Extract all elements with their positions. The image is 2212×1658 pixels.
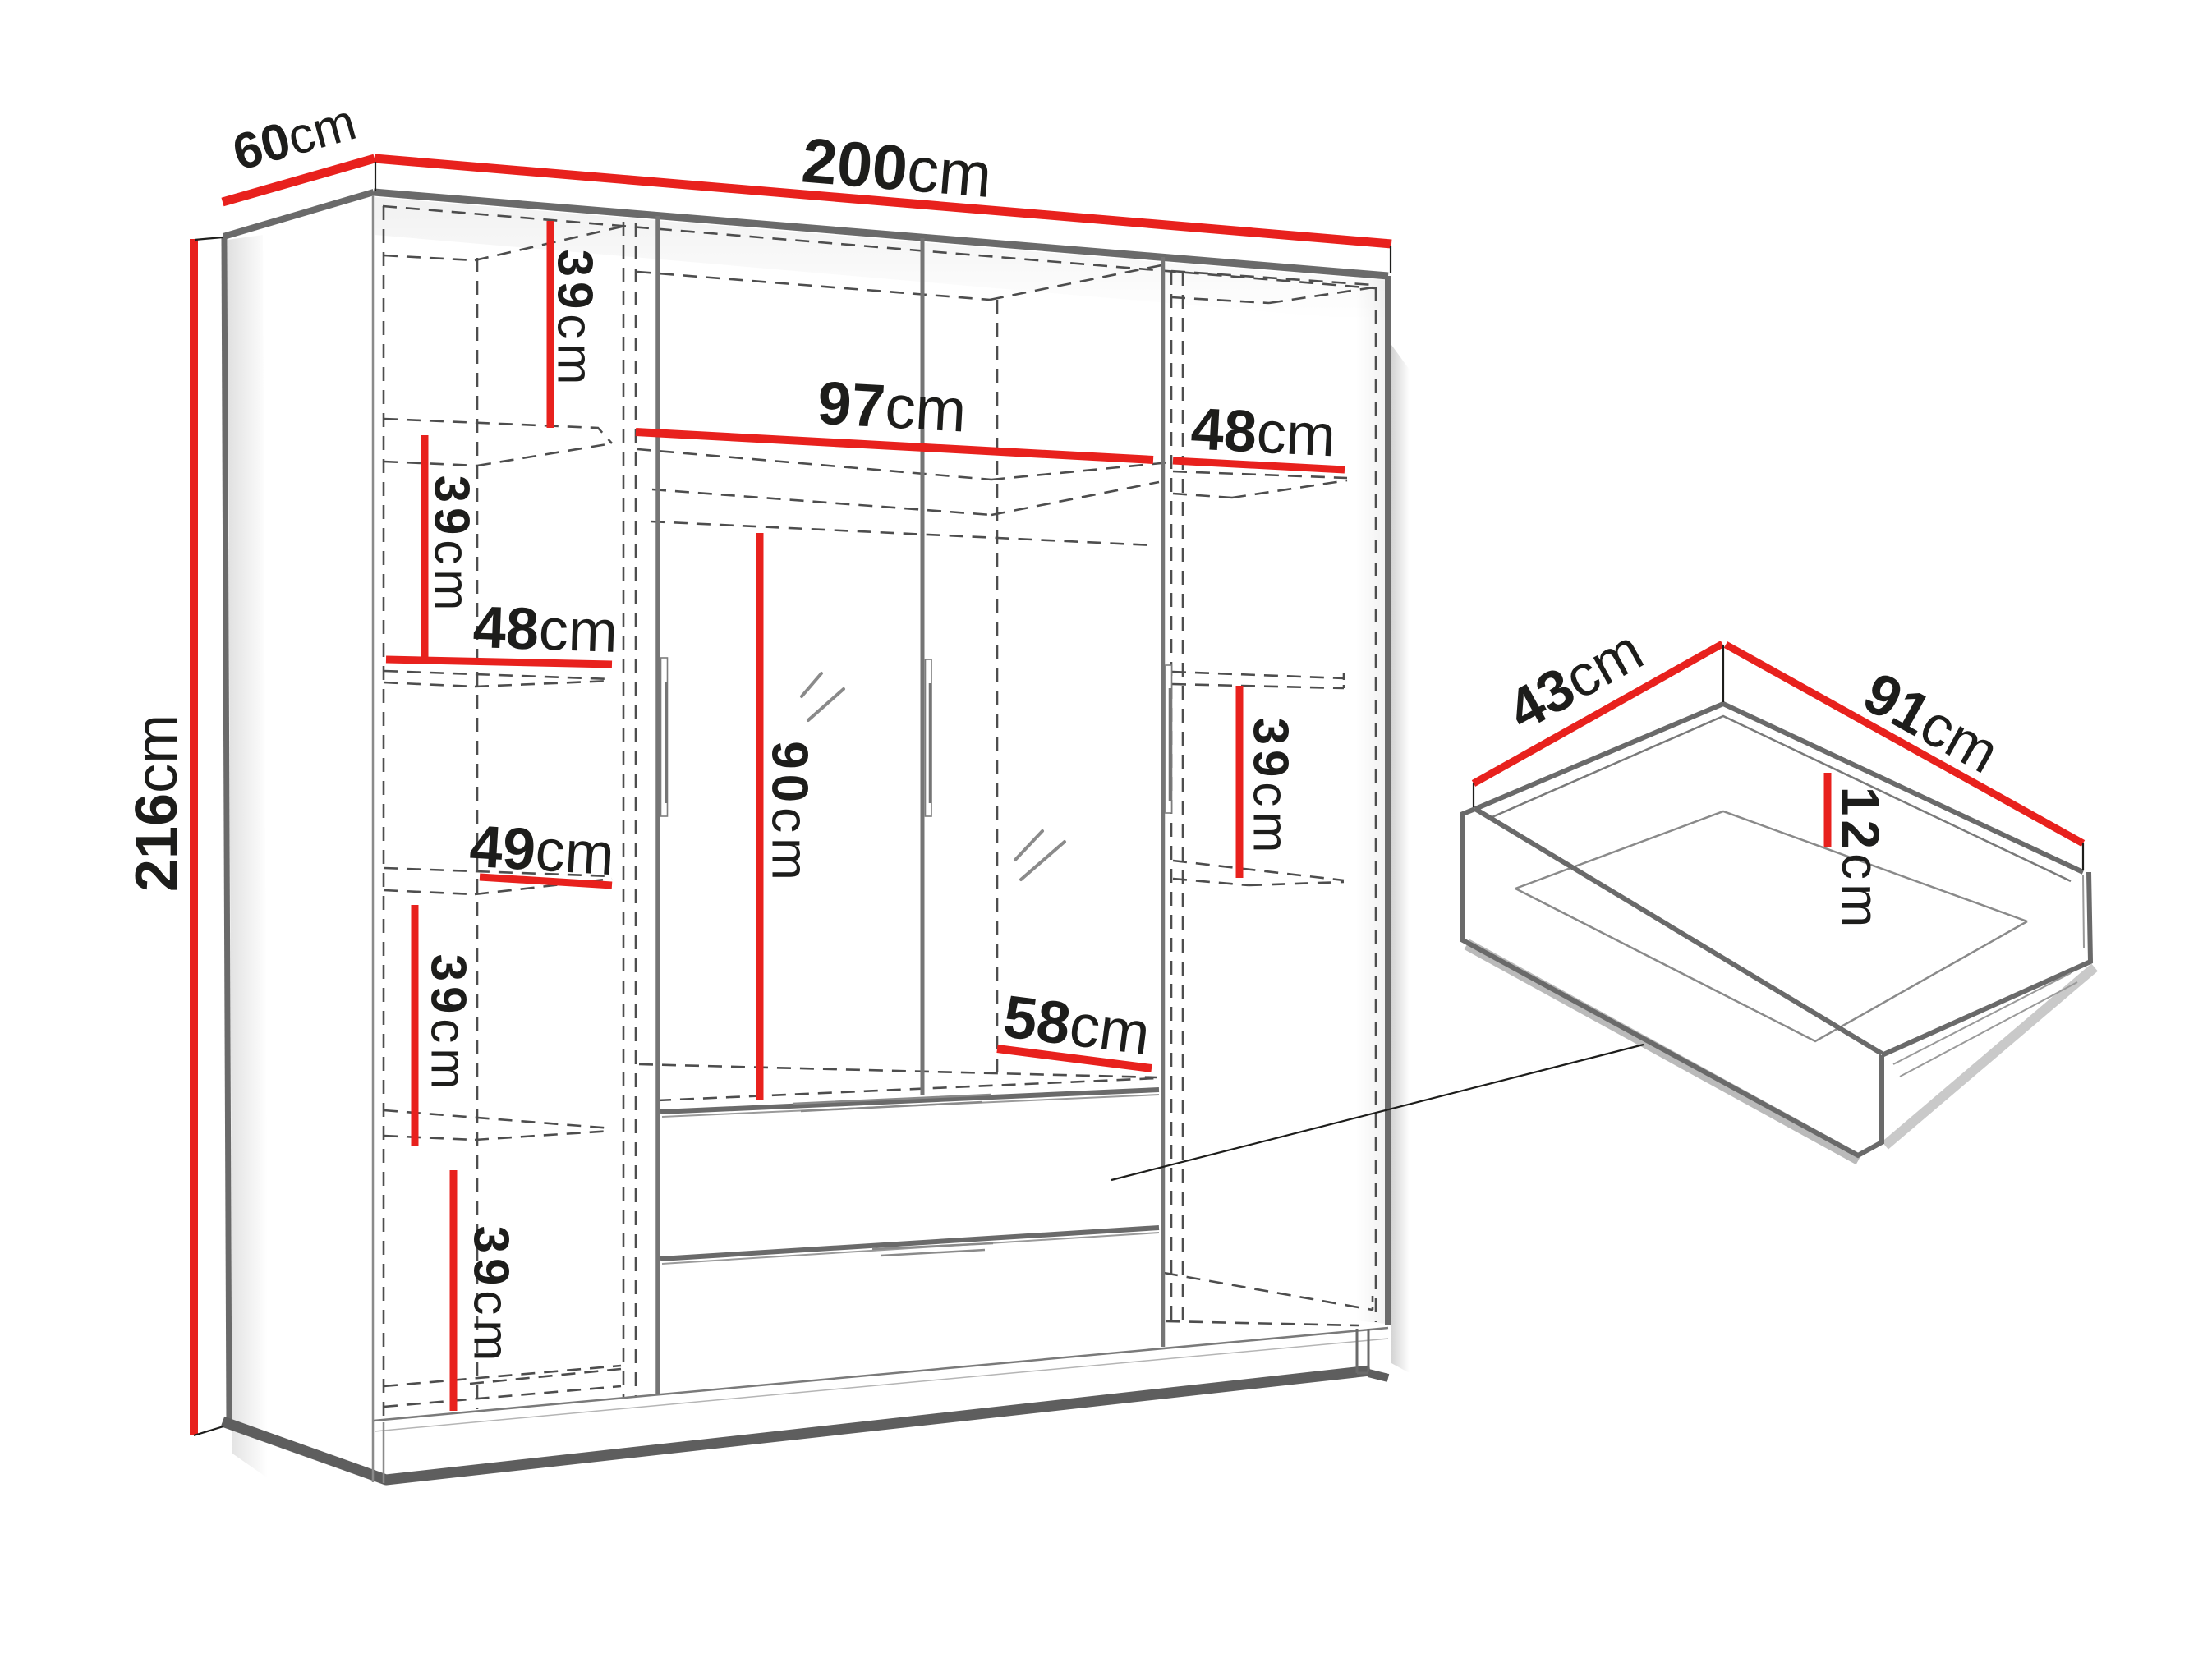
svg-text:39cm: 39cm <box>424 475 479 616</box>
svg-text:97cm: 97cm <box>816 369 968 445</box>
svg-text:48cm: 48cm <box>1189 396 1337 469</box>
svg-text:49cm: 49cm <box>468 814 617 889</box>
svg-text:12cm: 12cm <box>1831 787 1890 932</box>
svg-text:91cm: 91cm <box>1853 660 2009 786</box>
svg-text:39cm: 39cm <box>547 250 602 390</box>
svg-text:39cm: 39cm <box>421 954 476 1095</box>
svg-text:39cm: 39cm <box>1243 718 1298 858</box>
svg-text:48cm: 48cm <box>472 595 619 665</box>
svg-text:216cm: 216cm <box>124 714 190 892</box>
svg-text:90cm: 90cm <box>761 741 818 885</box>
svg-text:39cm: 39cm <box>463 1226 518 1366</box>
